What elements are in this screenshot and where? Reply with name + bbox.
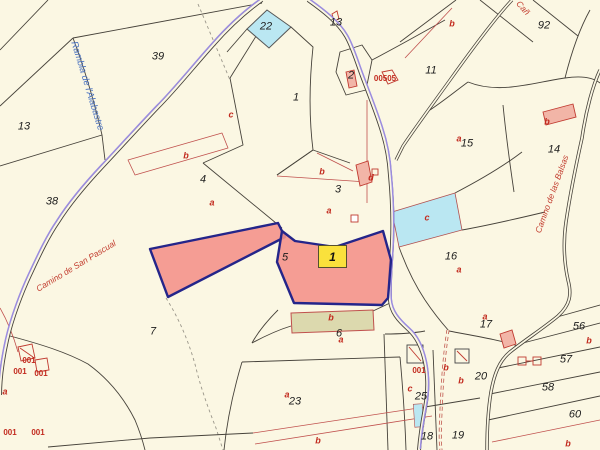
map-canvas <box>0 0 600 450</box>
khaki-subparcel-b[interactable] <box>291 310 374 333</box>
map-background <box>0 0 600 450</box>
cadastral-map[interactable]: 1 39133841222131192151431657236172025181… <box>0 0 600 450</box>
selected-parcel-tag[interactable]: 1 <box>318 245 347 268</box>
